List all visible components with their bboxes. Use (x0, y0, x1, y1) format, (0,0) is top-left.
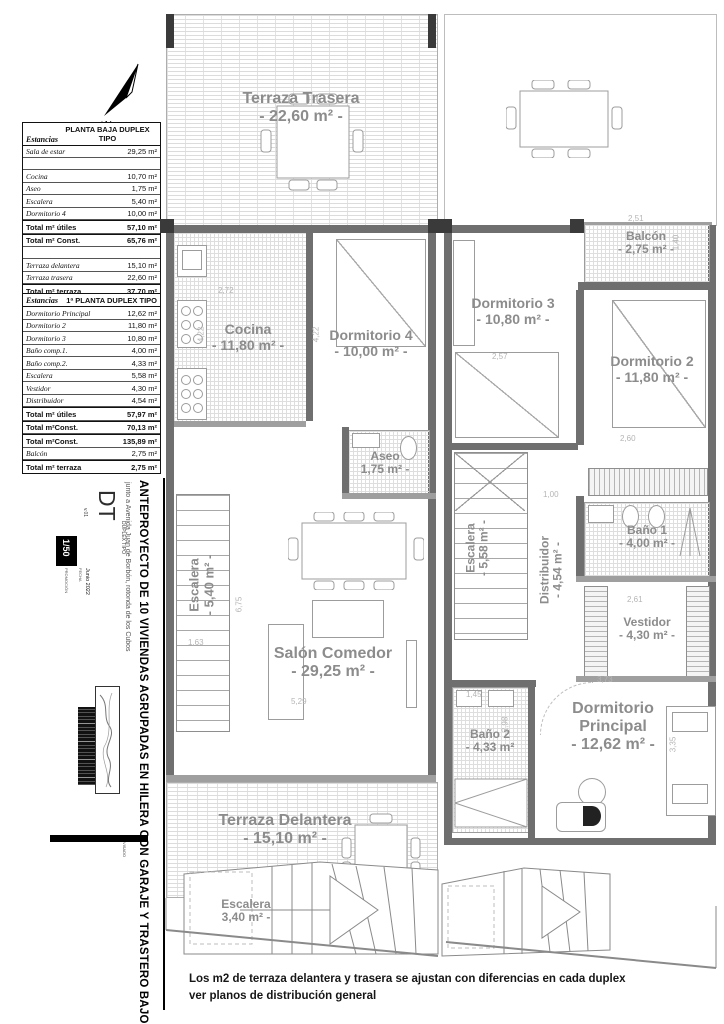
table-row-total: Total m² terraza2,75 m² (23, 460, 160, 473)
dimension: 4,22 (311, 327, 320, 343)
row-name: Dormitorio Principal (26, 309, 90, 318)
row-name: Dormitorio 4 (26, 209, 66, 218)
table-header: Estancias 1ª PLANTA DUPLEX TIPO (23, 294, 160, 307)
row-name: Vestidor (26, 384, 51, 393)
room-area: - 4,33 m² (444, 741, 536, 754)
wall-segment (444, 680, 536, 687)
room-name: Balcón (586, 230, 706, 243)
row-value: 5,58 m² (132, 371, 157, 380)
table-row: Dormitorio Principal12,62 m² (23, 307, 160, 320)
room-name: Escalera (187, 555, 202, 616)
col-header-estancias: Estancias (26, 296, 58, 305)
row-name: Total m² terraza (26, 463, 81, 472)
dimension: 5,29 (291, 697, 307, 706)
wardrobe-icon (453, 240, 475, 346)
room-name: Dormitorio 2 (592, 354, 712, 370)
room-label-terraza-trasera: Terraza Trasera - 22,60 m² - (216, 90, 386, 126)
room-name: Aseo (348, 450, 422, 463)
table-row: Dormitorio 211,80 m² (23, 320, 160, 333)
room-label-distribuidor: Distribuidor - 4,54 m² - (539, 536, 566, 604)
room-name: Vestidor (592, 616, 702, 629)
sink-basin (182, 250, 202, 270)
bench-cushion (583, 806, 601, 826)
table-planta-baja: Estancias PLANTA BAJA DUPLEX TIPO Sala d… (22, 122, 161, 298)
table-row: Distribuidor4,54 m² (23, 395, 160, 408)
dimension: 2,72 (218, 286, 234, 295)
room-area: 1,75 m² - (348, 463, 422, 476)
room-label-dormitorio-principal: Dormitorio Principal - 12,62 m² - (548, 700, 678, 754)
room-name: Baño 2 (444, 728, 536, 741)
row-value: 11,80 m² (128, 321, 157, 330)
bench-icon (556, 802, 606, 832)
room-label-dormitorio2: Dormitorio 2 - 11,80 m² - (592, 354, 712, 385)
row-value: 4,00 m² (132, 346, 157, 355)
wall-stub (160, 219, 174, 233)
staircase-cross-icon (455, 453, 525, 511)
room-area: - 5,40 m² - (202, 555, 217, 616)
room-area: - 12,62 m² - (548, 736, 678, 754)
table-row: Dormitorio 310,80 m² (23, 332, 160, 345)
row-value: 2,75 m² (131, 463, 157, 472)
wall-segment (428, 225, 436, 782)
wall-stub (438, 219, 452, 233)
table-row: Baño comp.2.4,33 m² (23, 357, 160, 370)
dimension: 3,35 (668, 737, 677, 753)
wall-segment (166, 225, 174, 782)
architect-sketch (96, 687, 119, 793)
wall-segment (578, 282, 716, 290)
room-area: - 5,58 m² - (478, 520, 491, 576)
row-name: Escalera (26, 197, 53, 206)
row-name: Baño comp.1. (26, 346, 67, 355)
balcony-rail (584, 222, 712, 225)
row-name: Distribuidor (26, 396, 64, 405)
bed-icon (455, 352, 559, 438)
room-name: Baño 1 (592, 524, 702, 537)
row-value: 4,33 m² (132, 359, 157, 368)
dimension: 4,22 (196, 327, 205, 343)
room-area: - 22,60 m² - (216, 108, 386, 126)
row-name: Dormitorio 2 (26, 321, 66, 330)
pillow-icon (672, 784, 708, 804)
wall-segment (576, 576, 716, 582)
row-value: 57,97 m² (127, 410, 157, 419)
wall-segment (174, 421, 306, 427)
row-value: 10,70 m² (127, 172, 157, 181)
col-header-estancias: Estancias (26, 135, 58, 144)
dimension: 1,63 (188, 638, 204, 647)
row-value: 2,75 m² (132, 449, 157, 458)
row-name: Terraza trasera (26, 273, 73, 282)
table-row: Aseo1,75 m² (23, 183, 160, 196)
room-area: - 10,00 m² - (315, 344, 427, 360)
room-label-escalera-p1: Escalera - 5,58 m² - (465, 520, 492, 576)
table-row: Escalera5,40 m² (23, 195, 160, 208)
sheet-name: DUPLEX TIPO (120, 521, 126, 554)
room-label-salon: Salón Comedor - 29,25 m² - (248, 645, 418, 681)
row-value: 15,10 m² (127, 261, 157, 270)
table-row-total: Total m² útiles57,97 m² (23, 407, 160, 421)
col-header-planta-baja: PLANTA BAJA DUPLEX TIPO (58, 125, 157, 144)
col-header-primera-planta: 1ª PLANTA DUPLEX TIPO (66, 296, 157, 305)
table-row-total: Total m² útiles57,10 m² (23, 220, 160, 234)
room-label-bano2: Baño 2 - 4,33 m² (444, 728, 536, 755)
wall-stub (428, 14, 436, 48)
table-row: Dormitorio 410,00 m² (23, 208, 160, 221)
table-row: Sala de estar29,25 m² (23, 146, 160, 159)
row-value: 135,89 m² (123, 437, 157, 446)
table-row: Baño comp.1.4,00 m² (23, 345, 160, 358)
dimension: 1,45 (466, 690, 482, 699)
footnote-line1: Los m2 de terraza delantera y trasera se… (189, 973, 626, 985)
floor-plan-sheet: N N Estancias PLANTA BAJA DUPLEX TIPO Sa… (0, 0, 724, 1024)
row-value: 12,62 m² (127, 309, 157, 318)
row-value: 65,76 m² (127, 236, 157, 245)
room-label-vestidor: Vestidor - 4,30 m² - (592, 616, 702, 643)
table-row: Terraza trasera22,60 m² (23, 272, 160, 285)
row-value: 57,10 m² (127, 223, 157, 232)
date-value: Junio 2022 (84, 568, 90, 595)
wall-stub (166, 14, 174, 48)
table-row-total: Total m²Const.135,89 m² (23, 434, 160, 448)
room-label-dormitorio3: Dormitorio 3 - 10,80 m² - (455, 296, 571, 327)
architect-sketch-box (95, 686, 120, 794)
header-line1: PLANTA BAJA (65, 125, 117, 134)
row-name: Balcón (26, 449, 47, 458)
header-line1: 1ª PLANTA (66, 296, 105, 305)
footnote-line2: ver planos de distribución general (189, 990, 376, 1002)
scale-value: 1/50 (61, 539, 71, 557)
header-line2: DUPLEX TIPO (107, 296, 157, 305)
version-label: v.01 (82, 508, 88, 517)
shower-icon (454, 778, 528, 828)
dimension: 1,00 (543, 490, 559, 499)
room-label-escalera-pb: Escalera - 5,40 m² - (187, 555, 216, 616)
room-name: Distribuidor (539, 536, 552, 604)
row-value: 5,40 m² (132, 197, 157, 206)
row-value: 10,00 m² (127, 209, 157, 218)
wall-segment (444, 838, 716, 845)
table-header: Estancias PLANTA BAJA DUPLEX TIPO (23, 123, 160, 146)
wall-segment (528, 687, 535, 838)
room-label-dormitorio4: Dormitorio 4 - 10,00 m² - (315, 328, 427, 359)
room-name: Cocina (198, 322, 298, 338)
room-label-terraza-delantera: Terraza Delantera - 15,10 m² - (190, 812, 380, 848)
room-area: - 11,80 m² - (198, 338, 298, 354)
dimension: 2,98 (500, 717, 509, 733)
dimension: 2,51 (628, 214, 644, 223)
room-name: Terraza Delantera (190, 812, 380, 830)
row-name: Baño comp.2. (26, 359, 67, 368)
row-value: 1,75 m² (132, 184, 157, 193)
table-primera-planta: Estancias 1ª PLANTA DUPLEX TIPO Dormitor… (22, 293, 161, 474)
room-name: Dormitorio (548, 700, 678, 718)
room-area: - 15,10 m² - (190, 830, 380, 848)
row-name: Total m²Const. (26, 423, 78, 432)
room-area: - 10,80 m² - (455, 312, 571, 328)
row-name: Total m² útiles (26, 223, 76, 232)
title-block-bar (50, 835, 148, 842)
room-name: Dormitorio 4 (315, 328, 427, 344)
visado-label: VISADO (122, 842, 127, 857)
table-row: Cocina10,70 m² (23, 170, 160, 183)
room-area: - 29,25 m² - (248, 663, 418, 681)
wall-segment (342, 493, 436, 499)
table-row: Terraza delantera15,10 m² (23, 259, 160, 272)
promo-label: PROMOCIÓN (64, 568, 69, 593)
kitchen-cabinet-icon (177, 368, 207, 420)
row-name: Dormitorio 3 (26, 334, 66, 343)
table-row: Vestidor4,30 m² (23, 382, 160, 395)
room-name-line2: Principal (548, 718, 678, 736)
room-name: Salón Comedor (248, 645, 418, 663)
row-name: Cocina (26, 172, 48, 181)
dimension: 2,60 (620, 434, 636, 443)
row-name: Escalera (26, 371, 53, 380)
table-row-total: Total m² Const.65,76 m² (23, 234, 160, 248)
washbasin-icon (352, 433, 380, 448)
room-area: - 4,54 m² - (552, 536, 565, 604)
table-row: Balcón2,75 m² (23, 448, 160, 461)
dining-table-icon (506, 80, 624, 158)
table-row-total: Total m²Const.70,13 m² (23, 421, 160, 435)
sofa-icon (312, 600, 384, 638)
wardrobe-icon (588, 468, 708, 496)
room-label-balcon: Balcón - 2,75 m² - (586, 230, 706, 257)
dimension: 2,57 (492, 352, 508, 361)
project-title: ANTEPROYECTO DE 10 VIVIENDAS AGRUPADAS E… (137, 480, 149, 1010)
row-name: Total m² Const. (26, 236, 80, 245)
wall-segment (166, 775, 436, 782)
room-area: - 4,30 m² - (592, 629, 702, 642)
wall-stub (570, 219, 584, 233)
table-row-spacer (23, 158, 160, 170)
kitchen-sink-icon (177, 245, 207, 277)
row-value: 22,60 m² (127, 273, 157, 282)
dimension: 6,75 (234, 597, 243, 613)
dimension: 1,40 (671, 235, 680, 251)
row-name: Total m²Const. (26, 437, 78, 446)
wall-segment (576, 496, 584, 580)
wall-segment (444, 443, 578, 450)
sheet-code: DT (93, 490, 120, 521)
row-value: 29,25 m² (127, 147, 157, 156)
washbasin-icon (588, 505, 614, 523)
room-area: - 4,00 m² - (592, 537, 702, 550)
room-label-bano1: Baño 1 - 4,00 m² - (592, 524, 702, 551)
date-label: FECHA (78, 568, 83, 582)
dimension: 2,61 (627, 595, 643, 604)
site-boundary-lines (160, 896, 720, 980)
table-row-spacer (23, 247, 160, 259)
row-name: Total m² útiles (26, 410, 76, 419)
wall-segment (444, 225, 586, 233)
washbasin-icon (488, 690, 514, 707)
row-value: 70,13 m² (127, 423, 157, 432)
row-name: Terraza delantera (26, 261, 80, 270)
scale-box: 1/50 (56, 536, 77, 566)
room-label-cocina: Cocina - 11,80 m² - (198, 322, 298, 353)
dimension: 3,73 (597, 675, 613, 684)
dining-table-icon (288, 512, 424, 590)
row-name: Sala de estar (26, 147, 65, 156)
room-area: - 11,80 m² - (592, 370, 712, 386)
room-area: - 2,75 m² - (586, 243, 706, 256)
room-label-aseo: Aseo 1,75 m² - (348, 450, 422, 477)
row-value: 10,80 m² (127, 334, 157, 343)
row-name: Aseo (26, 184, 41, 193)
table-row: Escalera5,58 m² (23, 370, 160, 383)
row-value: 4,30 m² (132, 384, 157, 393)
room-name: Terraza Trasera (216, 90, 386, 108)
room-name: Dormitorio 3 (455, 296, 571, 312)
row-value: 4,54 m² (132, 396, 157, 405)
room-name: Escalera (465, 520, 478, 576)
wall-segment (166, 225, 436, 233)
wall-segment (576, 290, 584, 445)
